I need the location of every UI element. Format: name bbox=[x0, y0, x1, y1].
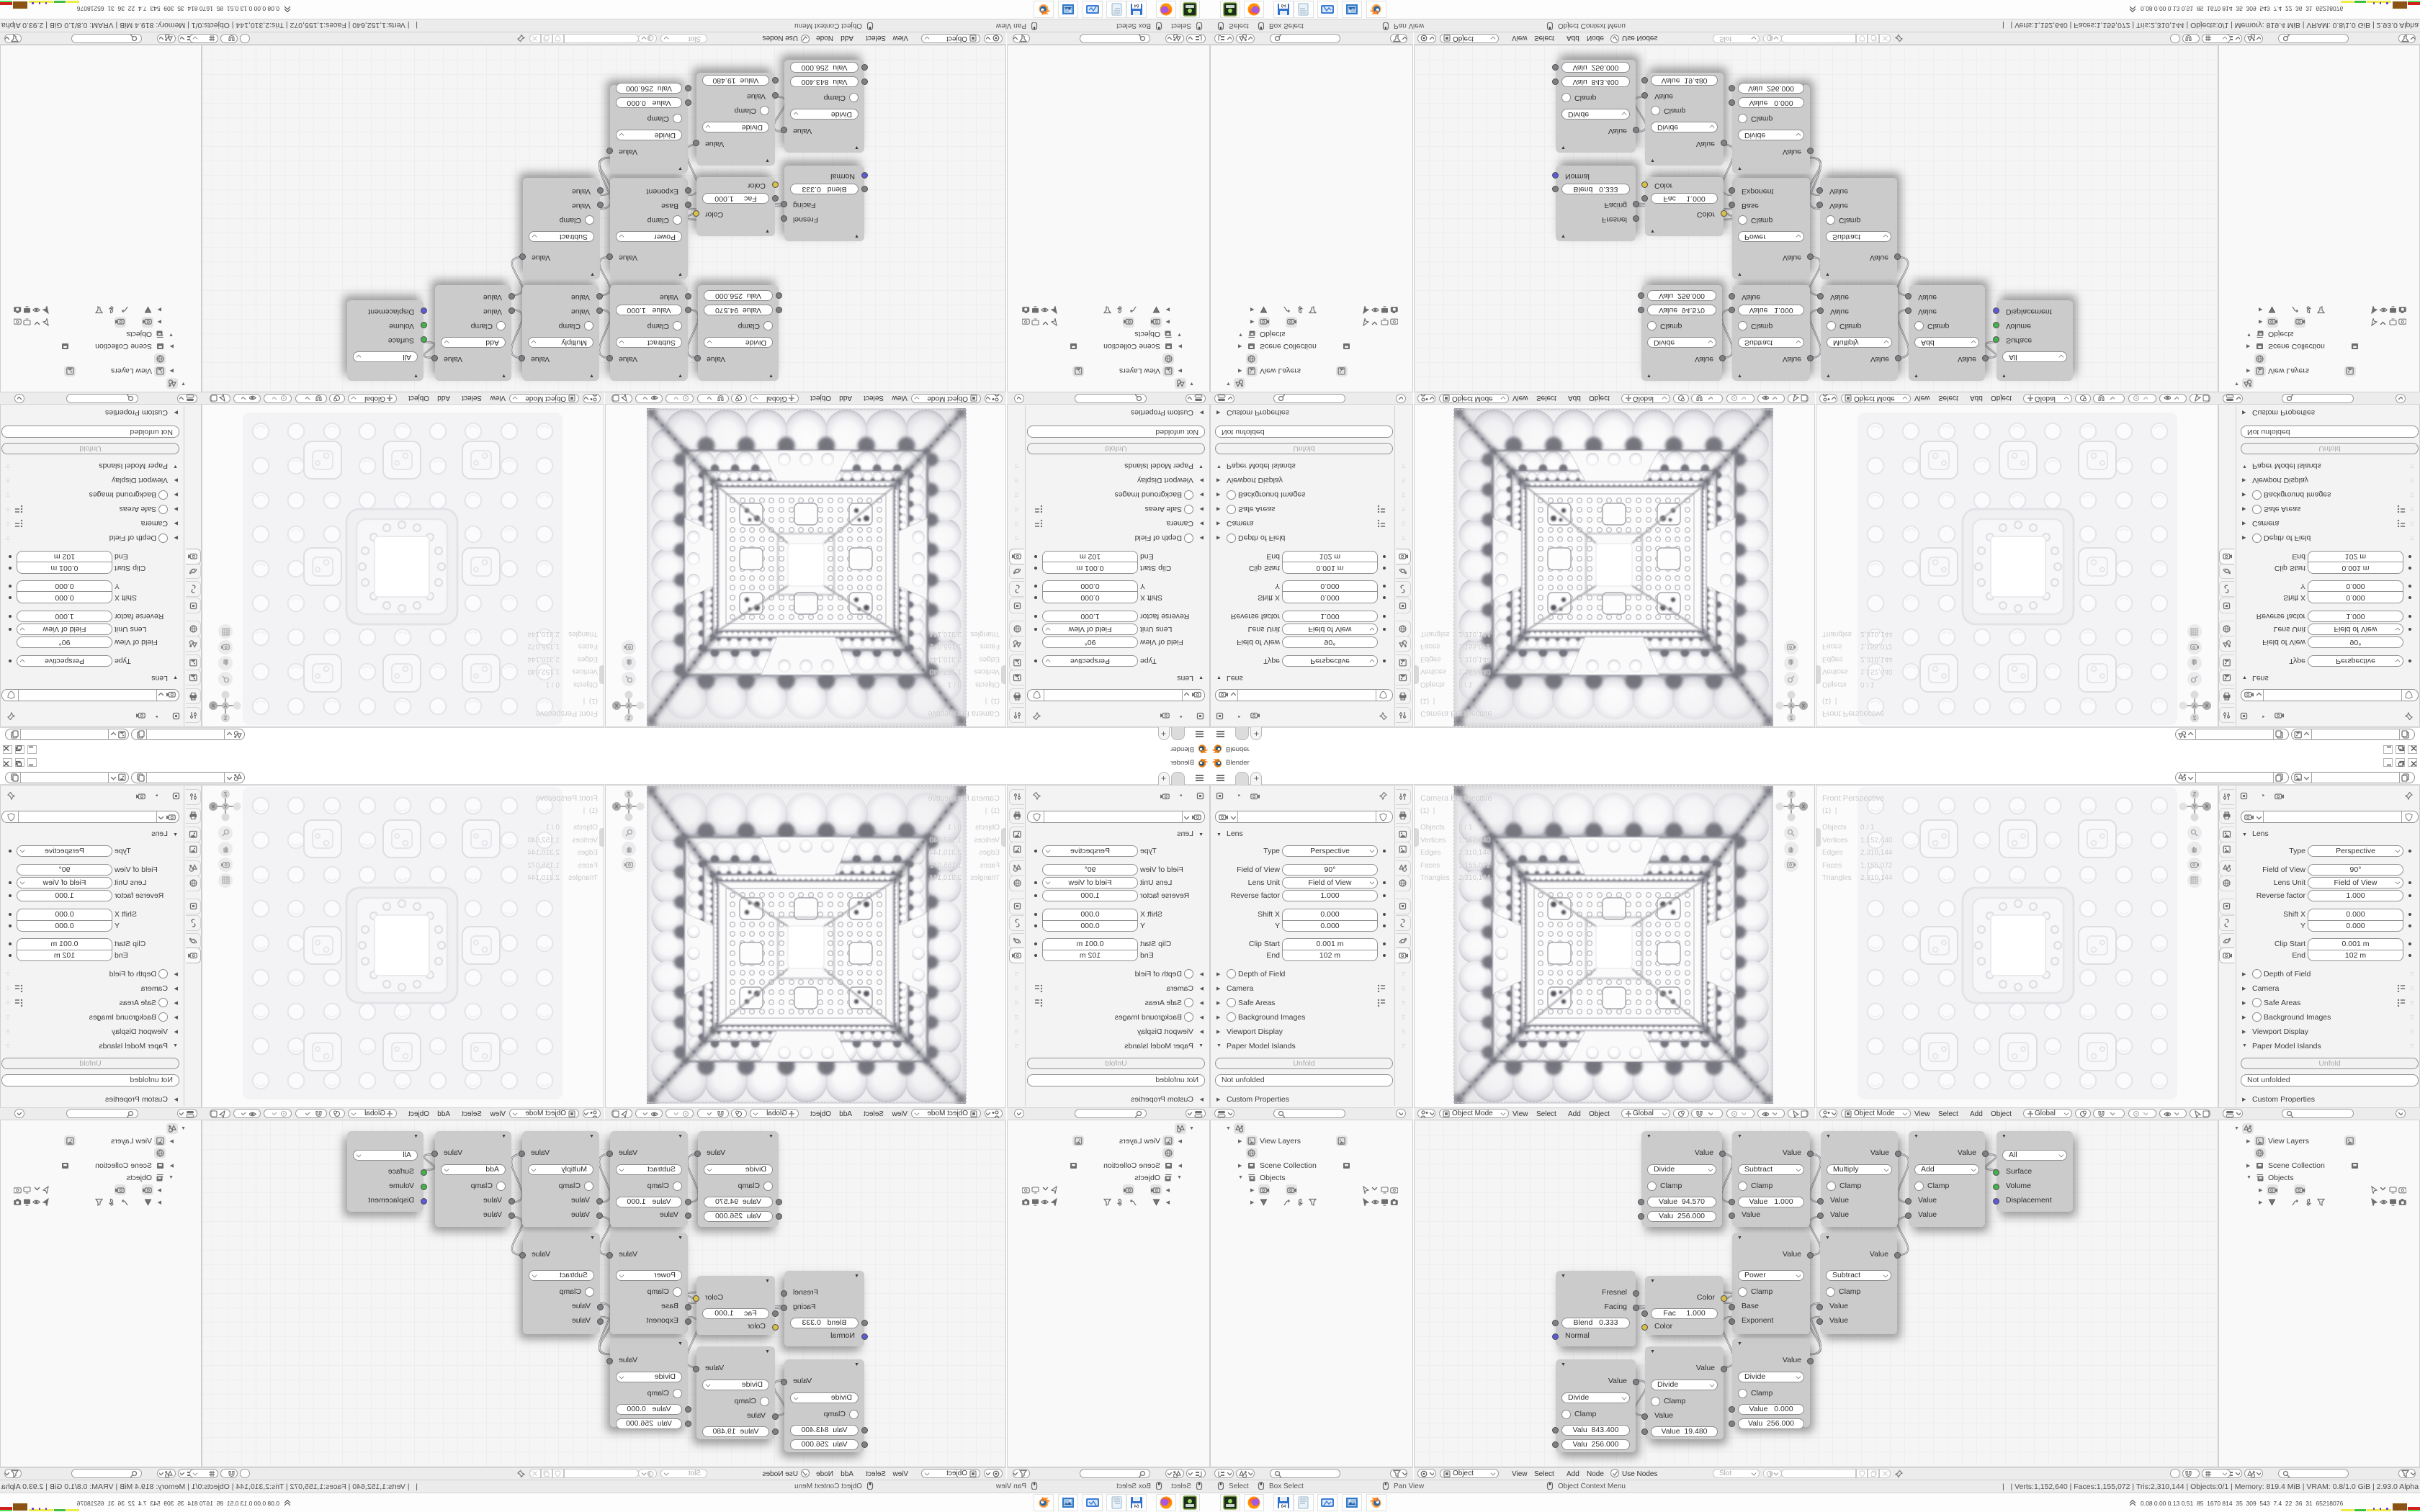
svg-text:Y: Y bbox=[627, 805, 630, 810]
svg-text:Z: Z bbox=[223, 715, 227, 720]
svg-text:Z: Z bbox=[627, 715, 630, 720]
svg-text:X: X bbox=[1802, 703, 1806, 708]
svg-text:Y: Y bbox=[223, 703, 227, 708]
svg-text:Z: Z bbox=[627, 793, 630, 798]
svg-text:Y: Y bbox=[627, 703, 630, 708]
svg-text:X: X bbox=[614, 703, 618, 708]
svg-text:Z: Z bbox=[223, 793, 227, 798]
svg-text:64: 64 bbox=[1134, 1505, 1139, 1509]
svg-text:X: X bbox=[1802, 805, 1806, 810]
svg-text:X: X bbox=[2205, 703, 2209, 708]
svg-text:X: X bbox=[614, 805, 618, 810]
svg-text:64: 64 bbox=[1281, 1505, 1286, 1509]
svg-text:Y: Y bbox=[1790, 703, 1793, 708]
svg-text:Z: Z bbox=[2193, 715, 2197, 720]
svg-text:X: X bbox=[211, 805, 215, 810]
svg-text:64: 64 bbox=[1134, 3, 1139, 7]
svg-text:Y: Y bbox=[2193, 805, 2197, 810]
svg-text:64: 64 bbox=[1281, 3, 1286, 7]
svg-text:Y: Y bbox=[2193, 703, 2197, 708]
svg-text:X: X bbox=[211, 703, 215, 708]
svg-text:Z: Z bbox=[1790, 715, 1793, 720]
svg-text:Y: Y bbox=[1790, 805, 1793, 810]
svg-text:Z: Z bbox=[1790, 793, 1793, 798]
svg-text:Z: Z bbox=[2193, 793, 2197, 798]
svg-text:Y: Y bbox=[223, 805, 227, 810]
svg-text:X: X bbox=[2205, 805, 2209, 810]
